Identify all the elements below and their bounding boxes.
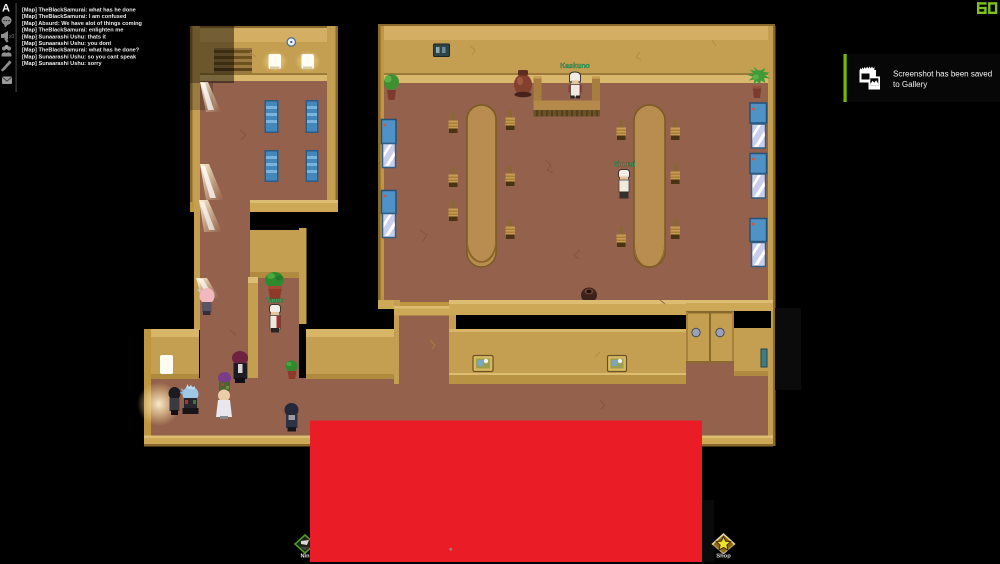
- svg-text:[Map] Sunaarashi Ushu: thats i: [Map] Sunaarashi Ushu: thats it: [22, 34, 106, 40]
- svg-text:x0: x0: [9, 34, 15, 40]
- svg-text:[Map] Sunaarashi Ushu: so you: [Map] Sunaarashi Ushu: so you cant speak: [22, 54, 137, 60]
- svg-text:[Map] TheBlackSamurai: I am co: [Map] TheBlackSamurai: I am confused: [22, 14, 127, 20]
- svg-text:[Map] Sunaarashi Ushu: sorry: [Map] Sunaarashi Ushu: sorry: [22, 61, 102, 67]
- svg-text:[Map] Absurd: We have alot of: [Map] Absurd: We have alot of things com…: [22, 21, 143, 27]
- svg-text:Tamo: Tamo: [266, 298, 284, 305]
- svg-text:Screenshot has been saved: Screenshot has been saved: [893, 70, 992, 79]
- svg-text:Ghursi: Ghursi: [613, 162, 636, 169]
- svg-text:to Gallery: to Gallery: [893, 80, 927, 89]
- svg-text:A: A: [2, 3, 10, 15]
- svg-text:[Map] TheBlackSamurai: enlight: [Map] TheBlackSamurai: enlighten me: [22, 28, 123, 34]
- svg-text:[Map] TheBlackSamurai: what ha: [Map] TheBlackSamurai: what has he done?: [22, 48, 140, 54]
- svg-text:Kaskuno: Kaskuno: [560, 63, 590, 70]
- svg-text:Shop: Shop: [716, 554, 731, 560]
- svg-text:Nin: Nin: [300, 554, 310, 560]
- svg-text:[Map] TheBlackSamurai: what ha: [Map] TheBlackSamurai: what has he done: [22, 8, 136, 14]
- svg-text:[Map] Sunaarashi Ushu: you don: [Map] Sunaarashi Ushu: you dont: [22, 41, 111, 47]
